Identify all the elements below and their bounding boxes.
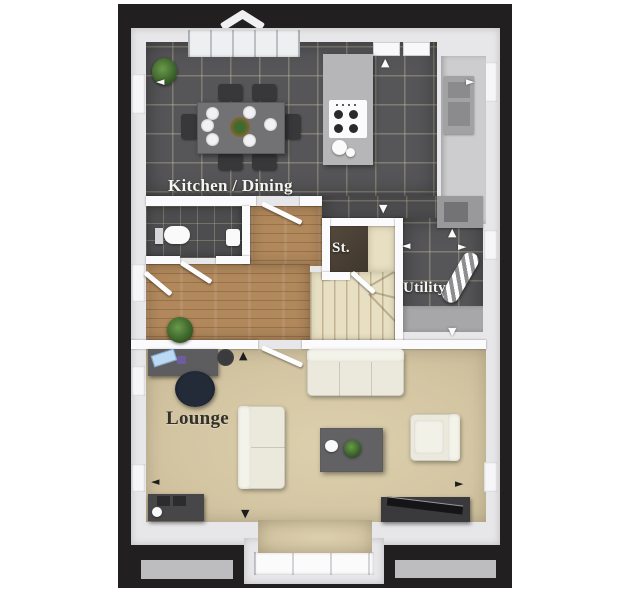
window-arrow-right-icon: ►: [455, 478, 463, 489]
wc-wall-bottom: [216, 256, 250, 264]
plate-icon: [243, 134, 256, 147]
dining-chair: [252, 84, 276, 101]
window-arrow-left-icon: ◄: [156, 76, 164, 87]
door-arrow-up-icon: ▲: [239, 350, 247, 361]
room-label-kitchen-dining: Kitchen / Dining: [168, 176, 293, 196]
utility-side-door: [484, 230, 497, 260]
floor-plan: ◄ ▲ ► ▼ ▲ ◄ ► ▼ ▲ ◄ ▼ ► Kitchen / Dining…: [0, 0, 628, 599]
sideboard-bowl: [152, 507, 162, 517]
table-centerpiece: [230, 117, 250, 137]
window-arrow-right-icon: ►: [466, 76, 474, 87]
lounge-wall: [131, 340, 258, 349]
basin-icon: [226, 229, 240, 246]
oven-icon: [448, 102, 470, 126]
burner-icon: [334, 110, 343, 119]
burner-icon: [334, 124, 343, 133]
sofa-seam: [251, 447, 285, 448]
opening-arrow-down-icon: ▼: [379, 203, 387, 214]
lounge-side-window-upper: [132, 366, 145, 396]
window-arrow-down-icon: ▼: [241, 508, 249, 519]
wc-wall-bottom: [146, 256, 180, 264]
kitchen-window: [373, 42, 400, 56]
bay-window-floor: [258, 520, 372, 553]
plate-icon: [206, 133, 219, 146]
stairs-wall-right: [395, 218, 403, 349]
hob-knob: [342, 104, 344, 106]
boiler-icon: [444, 202, 468, 222]
door-arrow-right-icon: ►: [458, 241, 466, 252]
sideboard-box: [173, 496, 186, 506]
lounge-wall: [302, 340, 486, 349]
room-label-utility: Utility: [403, 280, 446, 297]
dining-chair: [218, 84, 242, 101]
sink-icon: [346, 148, 355, 157]
hallway-plant: [167, 317, 193, 343]
bay-window-glazing: [254, 552, 374, 575]
coffee-table-plant: [344, 440, 361, 457]
sofa-seam: [371, 362, 372, 396]
burner-icon: [349, 110, 358, 119]
sofa-back: [307, 349, 404, 362]
opening-arrow-down-icon: ▼: [448, 326, 456, 337]
armchair-seat: [414, 420, 444, 454]
two-seat-sofa: [238, 406, 285, 489]
dining-chair: [181, 114, 197, 139]
window-arrow-up-icon: ▲: [381, 57, 389, 68]
stairs-wall-left: [322, 218, 330, 280]
dining-chair: [284, 114, 300, 139]
utility-counter: [403, 306, 483, 332]
plate-icon: [201, 119, 214, 132]
room-label-lounge: Lounge: [166, 408, 229, 430]
desk-accessory: [177, 356, 186, 364]
stairs-landing: [368, 226, 395, 272]
office-chair: [175, 371, 215, 407]
hob-knob: [354, 104, 356, 106]
front-door-opening: [132, 264, 145, 302]
armchair: [410, 414, 460, 461]
dining-chair: [252, 153, 276, 170]
storage-wall: [322, 272, 350, 280]
toilet-icon: [164, 226, 190, 244]
armchair-back: [448, 414, 460, 461]
sofa-seam: [339, 362, 340, 396]
dining-chair: [218, 153, 242, 170]
plate-icon: [264, 118, 277, 131]
kitchen-bay-window: [188, 30, 300, 57]
exterior-sill-right: [395, 560, 496, 578]
sofa-back: [238, 406, 251, 489]
kitchen-side-window: [132, 74, 145, 114]
room-label-storage: St.: [332, 240, 350, 257]
teapot-icon: [325, 440, 338, 452]
exterior-sill-left: [141, 560, 233, 579]
kitchen-window: [403, 42, 430, 56]
three-seat-sofa: [307, 349, 404, 396]
kitchen-wall: [146, 196, 256, 206]
opening-arrow-up-icon: ▲: [448, 227, 456, 238]
hob-knob: [348, 104, 350, 106]
sink-icon: [332, 140, 347, 155]
opening-arrow-left-icon: ◄: [402, 240, 410, 251]
plate-icon: [243, 106, 256, 119]
burner-icon: [349, 124, 358, 133]
kitchen-wall: [300, 196, 322, 206]
lounge-side-window-lower: [132, 464, 145, 492]
hob-knob: [336, 104, 338, 106]
sideboard-box: [157, 496, 170, 506]
toilet-cistern: [155, 228, 163, 244]
waste-bin: [217, 349, 234, 366]
window-arrow-left-icon: ◄: [151, 476, 159, 487]
stairs-wall-top: [322, 218, 403, 226]
lounge-right-window: [484, 462, 497, 492]
